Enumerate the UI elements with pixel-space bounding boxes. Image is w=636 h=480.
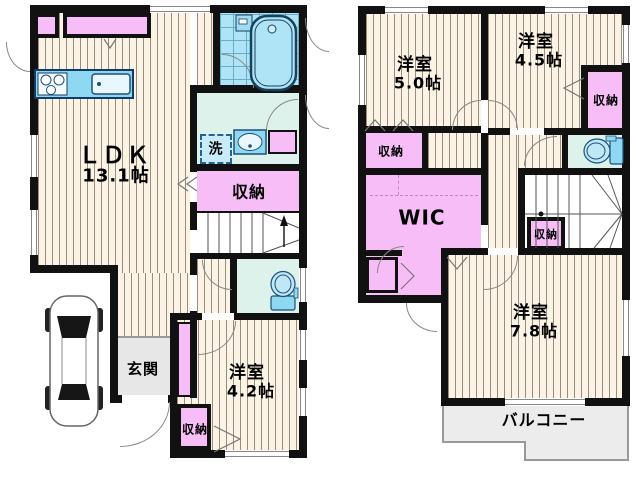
door-opening (488, 248, 518, 255)
wall (170, 313, 307, 320)
ldk-label: ＬＤＫ (78, 144, 150, 168)
wall (441, 248, 630, 255)
window (385, 6, 428, 14)
closet-top-main (63, 13, 151, 38)
car-icon (45, 296, 103, 426)
wic-rod-line (398, 175, 399, 195)
laundry-label: 洗 (209, 143, 224, 158)
door-opening (481, 100, 488, 133)
door-opening (481, 225, 488, 248)
wall (358, 6, 366, 303)
entrance-label: 玄関 (127, 362, 159, 378)
bedroom45-size-label: 4.5帖 (515, 53, 563, 70)
door-arc (406, 303, 437, 332)
window (299, 330, 307, 360)
wall (581, 72, 588, 128)
ldk-floor-strip (197, 13, 213, 85)
storage-mid-label: 収納 (232, 185, 266, 202)
door-opening (190, 172, 197, 202)
window (299, 388, 307, 416)
wall (213, 5, 220, 93)
wall (30, 265, 118, 273)
storage-left-label: 収納 (378, 146, 404, 159)
wall (518, 168, 630, 175)
balcony-label: バルコニー (502, 413, 587, 430)
window (299, 268, 307, 302)
entrance-step-line (117, 336, 172, 338)
wall (518, 175, 525, 248)
wall (422, 133, 428, 168)
bedroom78-size-label: 7.8帖 (510, 324, 558, 341)
window (505, 398, 585, 406)
toilet-room-f1 (237, 259, 299, 313)
door-arc (305, 18, 329, 52)
window (150, 5, 210, 13)
window (358, 55, 366, 105)
window (622, 25, 630, 63)
wall (441, 248, 448, 398)
corridor-floor (488, 135, 518, 248)
stairs-area-f1 (197, 213, 299, 253)
bedroom42-label: 洋室 (229, 365, 265, 383)
bedroom42-size-label: 4.2帖 (227, 384, 275, 401)
door-opening (190, 275, 197, 311)
bedroom50-size-label: 5.0帖 (394, 76, 442, 93)
wall (562, 135, 568, 168)
storage-right-label: 収納 (593, 95, 619, 108)
window (622, 300, 630, 356)
window (545, 6, 588, 14)
wall (581, 65, 628, 72)
door-arc (305, 95, 329, 129)
window (225, 450, 289, 458)
wall (190, 164, 299, 171)
bedroom45-label: 洋室 (518, 34, 554, 52)
storage-under-stairs-label: 収納 (534, 229, 558, 241)
wic-label: WIC (398, 208, 445, 229)
floor-plan-canvas: ＬＤＫ 13.1帖 洗 収納 玄関 洋室 4.2帖 収納 (0, 0, 636, 480)
wall (358, 295, 445, 303)
bedroom78-label: 洋室 (513, 305, 549, 323)
window (30, 135, 38, 177)
wall (197, 253, 299, 259)
toilet-room-f2 (568, 135, 622, 168)
window (30, 210, 38, 255)
wall (358, 168, 488, 175)
bedroom50-label: 洋室 (397, 57, 433, 75)
wic-rod-line (370, 195, 478, 196)
wall (481, 14, 488, 255)
door-opening (202, 313, 234, 320)
ldk-size-label: 13.1帖 (82, 168, 149, 187)
door-opening (190, 230, 197, 253)
wall (110, 265, 118, 403)
storage-bottom-label: 収納 (182, 424, 208, 437)
wash-cabinet (268, 130, 297, 154)
wall (170, 313, 177, 458)
hall-left-floor-f2 (428, 133, 481, 168)
door-arc (6, 42, 30, 72)
entrance-door-arc (120, 402, 170, 447)
